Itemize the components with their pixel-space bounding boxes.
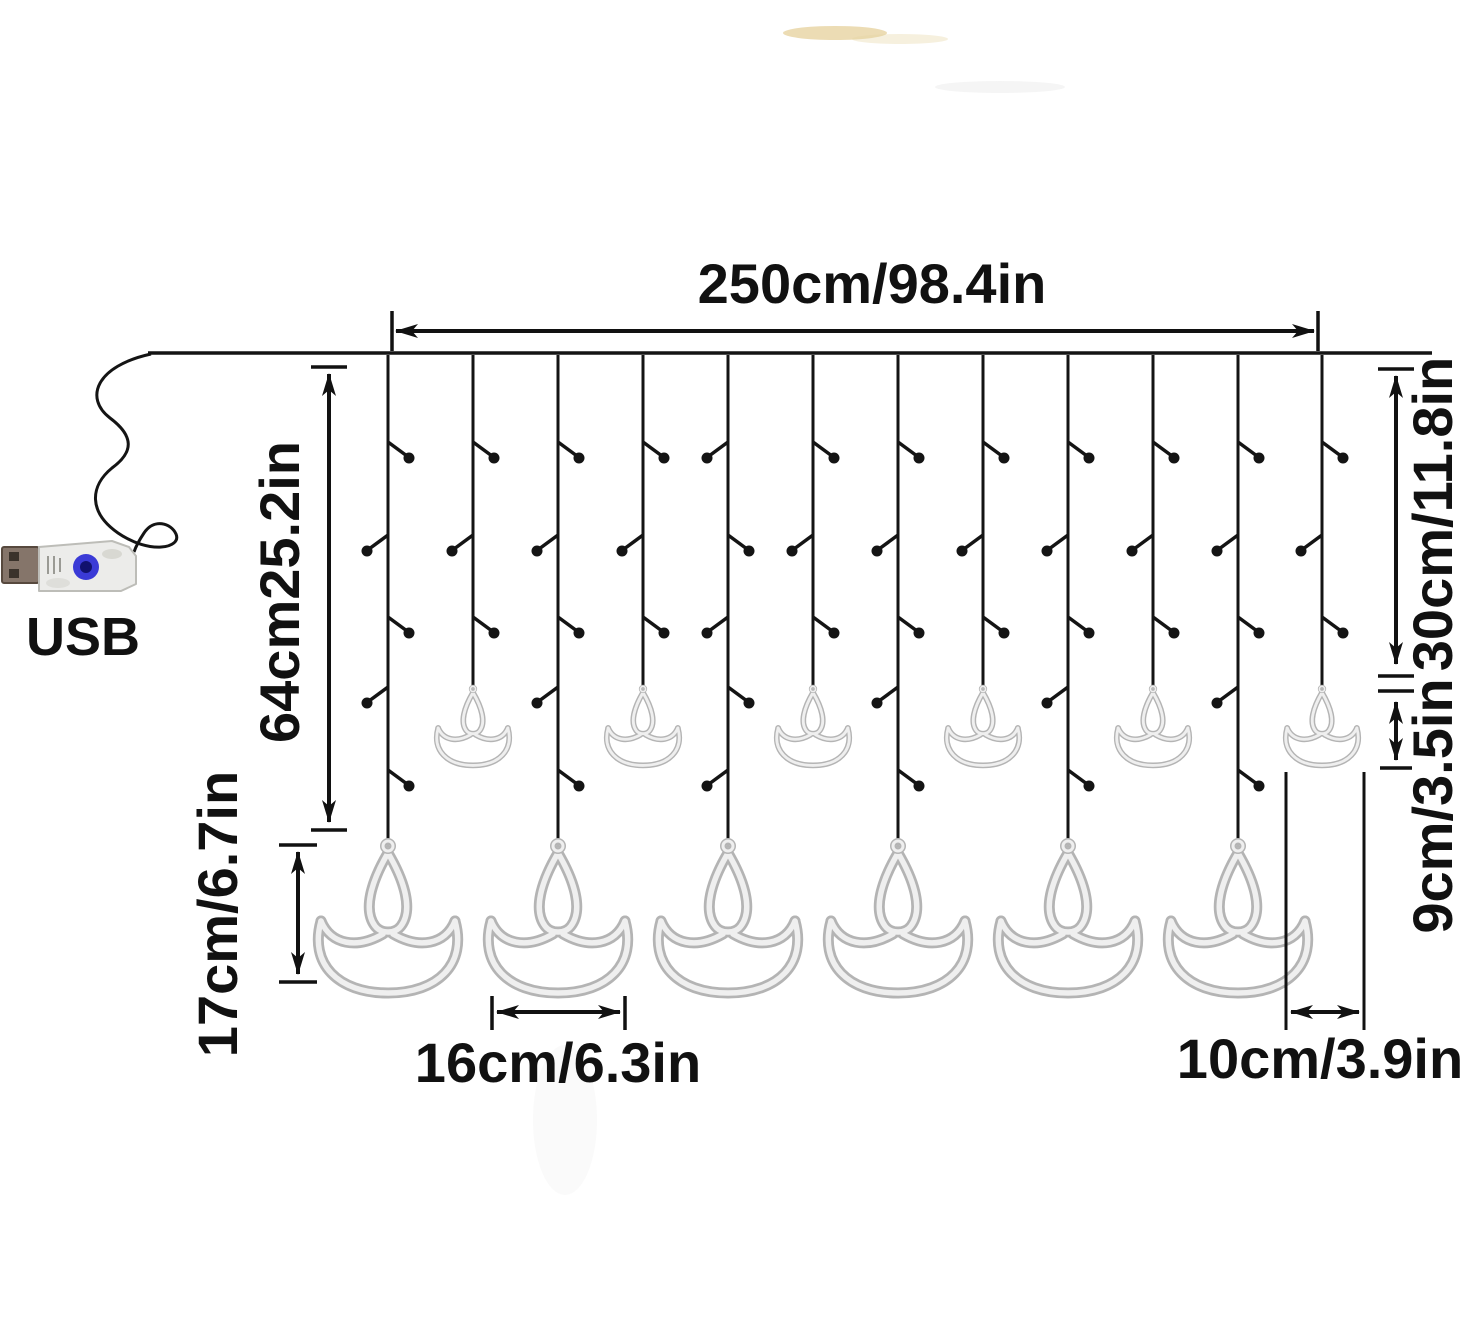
led-bulb [1338,628,1349,639]
led-bulb [1169,453,1180,464]
led-lead [728,687,747,701]
led-bulb [617,546,628,557]
led-bulb [404,453,415,464]
led-bulb [659,453,670,464]
led-lead [1049,687,1068,701]
total-width-label: 250cm/98.4in [698,252,1047,315]
led-lead [1153,617,1172,631]
usb-mode-button-center [80,561,92,573]
led-bulb [362,698,373,709]
light-string-6 [777,355,849,765]
usb-connector [2,541,136,591]
led-bulb [1338,453,1349,464]
led-bulb [914,453,925,464]
led-bulb [532,546,543,557]
dimension-large-diya-width: 16cm/6.3in [415,996,701,1094]
large-diya [318,841,457,993]
led-lead [964,535,983,549]
light-string-3 [488,355,627,993]
led-lead [388,442,407,456]
light-string-1 [318,355,457,993]
led-lead [643,442,662,456]
led-lead [728,535,747,549]
background-smudges [533,26,1065,1195]
right-drop-label: 30cm/11.8in [1401,357,1464,671]
large-diya-height-label: 17cm/6.7in [186,771,249,1057]
string-light-dimension-diagram: USB 250cm/98.4in 64cm25.2in 30cm/11.8in … [0,0,1480,1325]
led-bulb [1254,628,1265,639]
large-diya [488,841,627,993]
led-bulb [1127,546,1138,557]
led-lead [1219,535,1238,549]
led-lead [1068,617,1087,631]
led-bulb [702,453,713,464]
led-bulb [1212,698,1223,709]
large-diya-width-label: 16cm/6.3in [415,1031,701,1094]
led-bulb [999,628,1010,639]
led-lead [898,617,917,631]
led-bulb [659,628,670,639]
led-bulb [787,546,798,557]
led-lead [983,442,1002,456]
led-bulb [914,628,925,639]
led-bulb [1084,781,1095,792]
light-string-9 [998,355,1137,993]
led-bulb [1296,546,1307,557]
led-lead [709,770,728,784]
led-bulb [1042,546,1053,557]
left-drop-label: 64cm25.2in [248,441,311,743]
led-bulb [362,546,373,557]
small-diya-width-label: 10cm/3.9in [1177,1027,1463,1090]
usb-body-texture [102,549,122,559]
led-bulb [574,628,585,639]
usb-cord [95,354,176,552]
light-string-7 [828,355,967,993]
led-bulb [744,698,755,709]
usb-body-texture [46,578,70,588]
led-bulb [702,628,713,639]
led-lead [1049,535,1068,549]
led-lead [1238,617,1257,631]
small-diya [777,686,849,765]
led-lead [898,770,917,784]
light-string-8 [947,355,1019,765]
led-lead [369,535,388,549]
led-bulb [829,628,840,639]
usb-plug-hole [9,552,19,561]
led-lead [709,617,728,631]
led-bulb [1084,628,1095,639]
led-lead [643,617,662,631]
small-diya-height-label: 9cm/3.5in [1401,678,1464,933]
led-lead [388,617,407,631]
led-lead [813,442,832,456]
led-lead [1322,617,1341,631]
led-bulb [1254,781,1265,792]
led-lead [794,535,813,549]
usb-metal-plug [2,547,39,583]
led-bulb [574,453,585,464]
led-lead [1068,770,1087,784]
led-lead [1219,687,1238,701]
led-lead [624,535,643,549]
led-bulb [872,698,883,709]
led-bulb [532,698,543,709]
small-diya [437,686,509,765]
light-string-12 [1286,355,1358,765]
led-lead [1303,535,1322,549]
led-bulb [1169,628,1180,639]
led-bulb [872,546,883,557]
led-bulb [404,628,415,639]
led-lead [1322,442,1341,456]
dimension-large-diya-height: 17cm/6.7in [186,771,317,1057]
led-lead [1153,442,1172,456]
led-lead [879,687,898,701]
small-diya [1117,686,1189,765]
led-bulb [744,546,755,557]
small-diya [607,686,679,765]
led-lead [369,687,388,701]
led-bulb [957,546,968,557]
large-diya [658,841,797,993]
light-curtain [318,355,1358,993]
led-lead [1134,535,1153,549]
led-lead [1238,442,1257,456]
led-lead [983,617,1002,631]
usb-plug-hole [9,569,19,578]
led-bulb [1084,453,1095,464]
led-lead [558,442,577,456]
led-bulb [404,781,415,792]
large-diya [828,841,967,993]
dimension-total-width: 250cm/98.4in [392,252,1318,351]
led-lead [473,442,492,456]
small-diya [1286,686,1358,765]
led-lead [1238,770,1257,784]
led-lead [813,617,832,631]
led-lead [473,617,492,631]
led-bulb [1254,453,1265,464]
led-lead [558,617,577,631]
light-string-10 [1117,355,1189,765]
led-bulb [829,453,840,464]
led-bulb [1212,546,1223,557]
led-lead [709,442,728,456]
led-lead [454,535,473,549]
led-bulb [489,453,500,464]
led-lead [558,770,577,784]
led-bulb [702,781,713,792]
light-string-2 [437,355,509,765]
led-lead [388,770,407,784]
led-bulb [1042,698,1053,709]
usb-label: USB [26,607,140,667]
dimension-right-drop: 30cm/11.8in [1378,357,1464,691]
led-lead [539,535,558,549]
led-bulb [489,628,500,639]
led-lead [898,442,917,456]
led-bulb [914,781,925,792]
light-string-5 [658,355,797,993]
led-lead [879,535,898,549]
led-bulb [999,453,1010,464]
dimension-left-drop: 64cm25.2in [248,367,347,830]
dimension-small-diya-height: 9cm/3.5in [1380,678,1464,933]
led-lead [1068,442,1087,456]
led-bulb [447,546,458,557]
diagram-canvas: USB 250cm/98.4in 64cm25.2in 30cm/11.8in … [0,0,1480,1325]
led-lead [539,687,558,701]
light-string-4 [607,355,679,765]
small-diya [947,686,1019,765]
led-bulb [574,781,585,792]
large-diya [998,841,1137,993]
